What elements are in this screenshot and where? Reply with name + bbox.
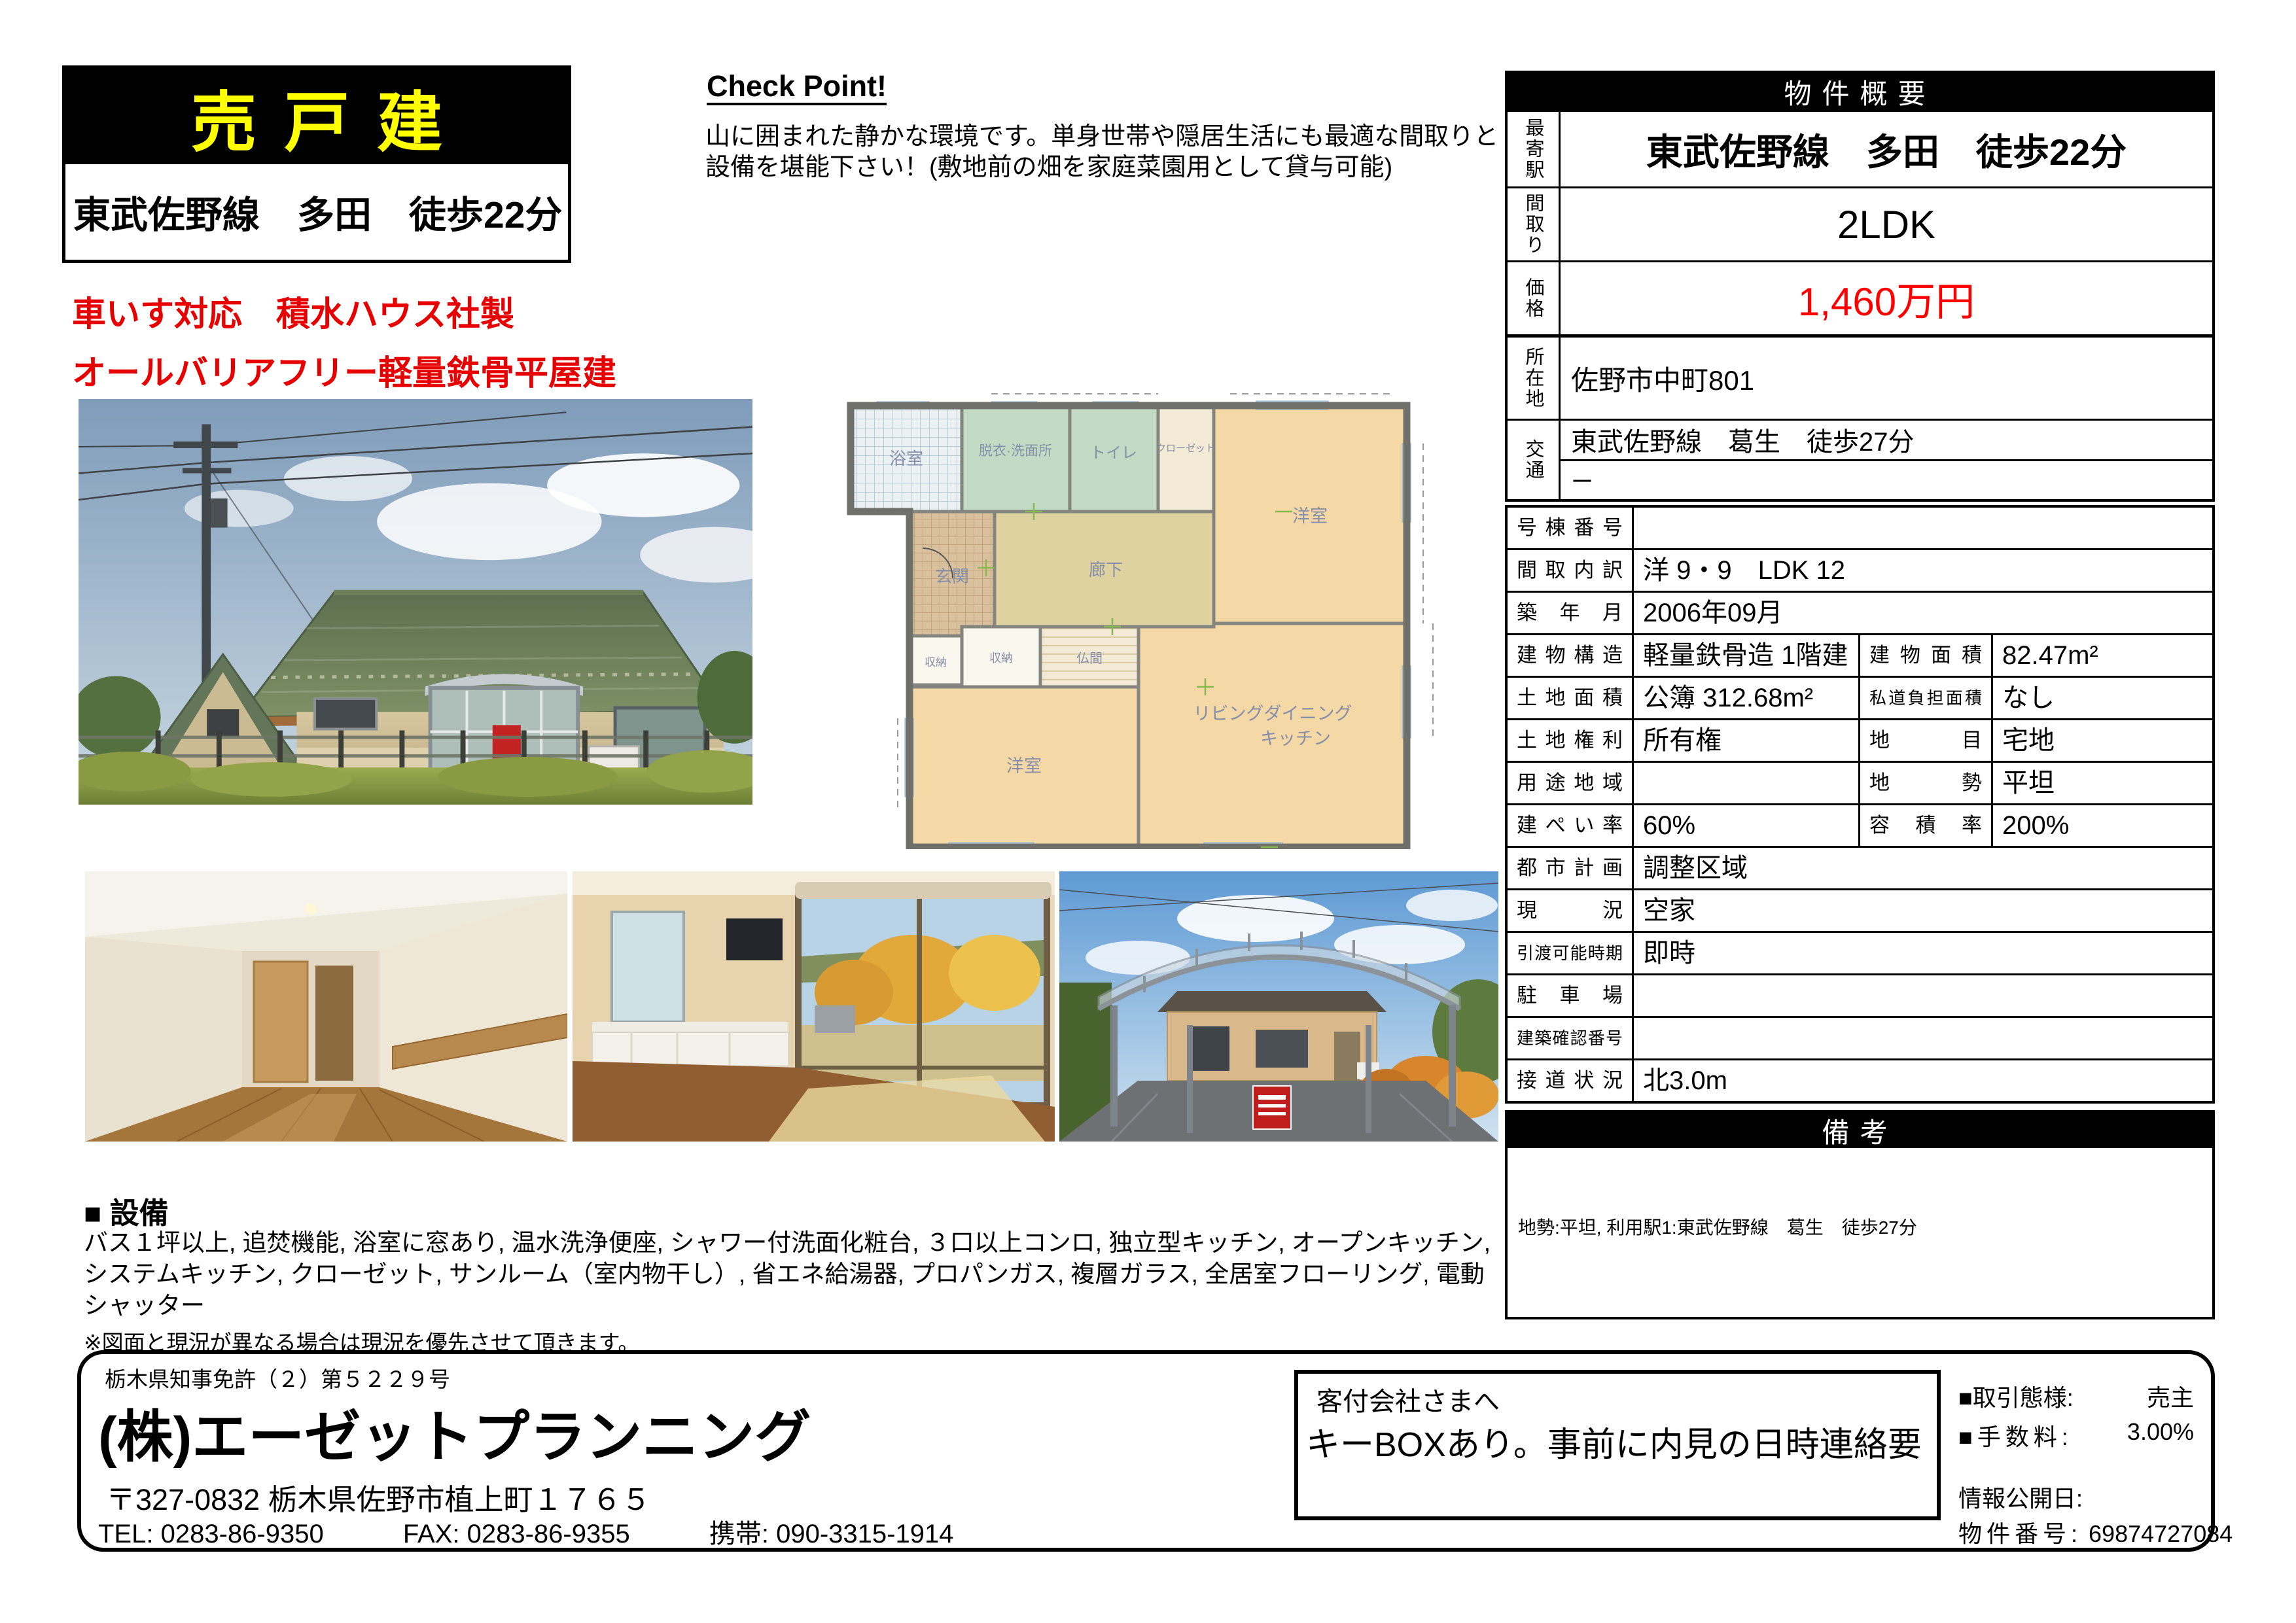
row-zoning: 用途地域 地勢 平坦: [1508, 761, 2212, 803]
details-table: 号棟番号 間取内訳 洋 9・9 LDK 12 築年月 2006年09月 建物構造…: [1505, 505, 2215, 1104]
wall-cabinet-dark: [726, 918, 783, 960]
detail-value: 所有権: [1634, 720, 1858, 761]
detail-value: 60%: [1634, 805, 1858, 846]
highlight-line-2: オールバリアフリー軽量鉄骨平屋建: [72, 345, 616, 394]
detail-label-2: 容積率: [1858, 805, 1993, 846]
property-number-value: 69874727084: [2089, 1520, 2233, 1547]
detail-label: 接道状況: [1508, 1060, 1634, 1101]
check-point-body: 山に囲まれた静かな環境です。単身世帯や隠居生活にも最適な間取りと設備を堪能下さい…: [705, 122, 1510, 183]
label-ldk-1: リビングダイニング: [1193, 704, 1352, 724]
photo-hallway-interior: [85, 871, 567, 1142]
detail-label: 建ぺい率: [1508, 805, 1634, 846]
company-mobile: 携帯: 090-3315-1914: [709, 1520, 954, 1548]
deal-fee-row: ■手数料: 3.00%: [1958, 1418, 2200, 1452]
remarks-text: 地勢:平坦, 利用駅1:東武佐野線 葛生 徒歩27分: [1518, 1213, 1917, 1240]
remarks-table: 備考 地勢:平坦, 利用駅1:東武佐野線 葛生 徒歩27分: [1505, 1110, 2215, 1319]
check-point-title: Check Point!: [707, 69, 887, 103]
detail-label: 土地面積: [1508, 678, 1634, 718]
rooms: [851, 406, 1407, 847]
label-bedroom2: 洋室: [1006, 756, 1042, 776]
deal-type-row: ■取引態様: 売主: [1958, 1379, 2200, 1413]
roller-blind: [795, 882, 1051, 899]
row-building-number: 号棟番号: [1508, 508, 2212, 548]
window-view: [798, 890, 1047, 1106]
door: [254, 962, 308, 1082]
company-tel: TEL: 0283-86-9350: [98, 1520, 324, 1548]
deal-info: ■取引態様: 売主 ■手数料: 3.00% 情報公開日: 物件番号: 69874…: [1958, 1350, 2200, 1552]
row-location: 所在地 佐野市中町801: [1508, 338, 2212, 419]
access-label: 交通: [1508, 421, 1561, 499]
property-number-row: 物件番号: 69874727084: [1958, 1515, 2200, 1549]
overview-row-station: 最寄駅 東武佐野線 多田 徒歩22分: [1508, 110, 2212, 186]
row-handover: 引渡可能時期 即時: [1508, 931, 2212, 973]
row-access: 交通 東武佐野線 葛生 徒歩27分 ー: [1508, 419, 2212, 499]
house-exterior-art: [79, 399, 752, 805]
detail-value-2: 82.47m²: [1993, 635, 2212, 676]
hallway-art: [85, 871, 567, 1142]
photo-kitchen-sunroom: [573, 871, 1055, 1142]
detail-label: 築年月: [1508, 593, 1634, 633]
detail-label-2: 地目: [1858, 720, 1993, 761]
row-coverage-ratio: 建ぺい率 60% 容積率 200%: [1508, 803, 2212, 846]
detail-label: 土地権利: [1508, 720, 1634, 761]
detail-value-2: 平坦: [1993, 763, 2212, 803]
detail-value: 即時: [1634, 933, 2212, 973]
row-land-rights: 土地権利 所有権 地目 宅地: [1508, 718, 2212, 761]
access-value-1: 東武佐野線 葛生 徒歩27分: [1561, 421, 2212, 459]
banner-station-line: 東武佐野線 多田 徒歩22分: [65, 164, 568, 260]
downlight: [305, 903, 317, 915]
row-road-access: 接道状況 北3.0m: [1508, 1058, 2212, 1101]
detail-label-2: 地勢: [1858, 763, 1993, 803]
photo-house-exterior: [79, 399, 752, 805]
floor-plan-drawing: 浴室 脱衣·洗面所 トイレ クローゼット 洋室 玄関 廊下 収納 収納 仏間 洋…: [838, 391, 1498, 849]
station-value: 東武佐野線 多田 徒歩22分: [1561, 112, 2212, 186]
label-bedroom1: 洋室: [1292, 506, 1328, 526]
floor-plan: 浴室 脱衣·洗面所 トイレ クローゼット 洋室 玄関 廊下 収納 収納 仏間 洋…: [838, 391, 1498, 849]
row-layout-breakdown: 間取内訳 洋 9・9 LDK 12: [1508, 548, 2212, 591]
location-label: 所在地: [1508, 338, 1561, 419]
overview-row-price: 価格 1,460万円: [1508, 260, 2212, 334]
detail-label: 間取内訳: [1508, 550, 1634, 591]
station-label: 最寄駅: [1508, 112, 1561, 186]
overview-header: 物件概要: [1508, 73, 2212, 110]
label-washroom: 脱衣·洗面所: [979, 444, 1052, 459]
row-land-area: 土地面積 公簿 312.68m² 私道負担面積 なし: [1508, 676, 2212, 718]
detail-label: 号棟番号: [1508, 508, 1634, 548]
property-type-banner: 売戸建 東武佐野線 多田 徒歩22分: [62, 65, 571, 263]
detail-label: 駐車場: [1508, 975, 1634, 1016]
countertop: [592, 1022, 788, 1032]
overview-row-layout: 間取り 2LDK: [1508, 186, 2212, 260]
carport-art: [1059, 871, 1498, 1142]
row-city-planning: 都市計画 調整区域: [1508, 846, 2212, 888]
price-label: 価格: [1508, 262, 1561, 334]
agent-note-heading: 客付会社さまへ: [1316, 1380, 1500, 1418]
remarks-body: 地勢:平坦, 利用駅1:東武佐野線 葛生 徒歩27分: [1508, 1148, 2212, 1317]
label-bath: 浴室: [889, 449, 923, 468]
detail-label: 建築確認番号: [1508, 1018, 1634, 1058]
row-building-confirmation: 建築確認番号: [1508, 1016, 2212, 1058]
equipment-title: ■ 設備: [84, 1189, 169, 1232]
flyer-sheet: 売戸建 東武佐野線 多田 徒歩22分 車いす対応 積水ハウス社製 オールバリアフ…: [0, 0, 2296, 1623]
agent-note-box: 客付会社さまへ キーBOXあり。事前に内見の日時連絡要: [1294, 1370, 1941, 1520]
layout-label: 間取り: [1508, 188, 1561, 260]
detail-value-2: なし: [1993, 678, 2212, 718]
label-toilet: トイレ: [1090, 444, 1137, 462]
detail-label: 都市計画: [1508, 848, 1634, 888]
location-table: 所在地 佐野市中町801 交通 東武佐野線 葛生 徒歩27分 ー: [1505, 335, 2215, 502]
detail-label-2: 私道負担面積: [1858, 678, 1993, 718]
deal-type-label: ■取引態様:: [1958, 1384, 2074, 1411]
price-value: 1,460万円: [1561, 262, 2212, 334]
detail-label: 建物構造: [1508, 635, 1634, 676]
row-built-date: 築年月 2006年09月: [1508, 591, 2212, 633]
overview-table: 物件概要 最寄駅 東武佐野線 多田 徒歩22分 間取り 2LDK 価格 1,46…: [1505, 71, 2215, 337]
mirror: [612, 912, 684, 1022]
row-parking: 駐車場: [1508, 973, 2212, 1016]
label-storage2: 収納: [989, 652, 1013, 665]
label-entrance: 玄関: [935, 567, 969, 586]
label-ldk-2: キッチン: [1260, 729, 1331, 748]
detail-value: 2006年09月: [1634, 593, 2212, 633]
row-current-status: 現況 空家: [1508, 888, 2212, 931]
sale-type-label: 売戸建: [65, 69, 568, 164]
photo-carport-exterior: [1059, 871, 1498, 1142]
detail-value: 洋 9・9 LDK 12: [1634, 550, 2212, 591]
detail-value: 公簿 312.68m²: [1634, 678, 1858, 718]
detail-label: 引渡可能時期: [1508, 933, 1634, 973]
label-hallway: 廊下: [1089, 560, 1123, 580]
detail-value: [1634, 508, 2212, 548]
equipment-body: バス１坪以上, 追焚機能, 浴室に窓あり, 温水洗浄便座, シャワー付洗面化粧台…: [84, 1227, 1504, 1321]
detail-value: 空家: [1634, 890, 2212, 931]
publish-date-label: 情報公開日:: [1958, 1485, 2083, 1512]
company-name: (株)エーゼットプランニング: [98, 1391, 811, 1473]
detail-label: 現況: [1508, 890, 1634, 931]
kitchen-art: [573, 871, 1055, 1142]
company-contacts: TEL: 0283-86-9350 FAX: 0283-86-9355 携帯: …: [98, 1512, 1025, 1550]
sale-sign-board: [1253, 1086, 1291, 1129]
row-structure-area: 建物構造 軽量鉄骨造 1階建 建物面積 82.47m²: [1508, 633, 2212, 676]
detail-value: 軽量鉄骨造 1階建: [1634, 635, 1858, 676]
company-fax: FAX: 0283-86-9355: [403, 1520, 630, 1548]
property-number-label: 物件番号:: [1958, 1520, 2082, 1547]
highlight-line-1: 車いす対応 積水ハウス社製: [72, 287, 514, 336]
label-altar-room: 仏間: [1076, 652, 1103, 666]
detail-value: [1634, 1018, 2212, 1058]
remarks-header: 備考: [1508, 1113, 2212, 1148]
detail-value: [1634, 763, 1858, 803]
detail-value: 北3.0m: [1634, 1060, 2212, 1101]
detail-value: 調整区域: [1634, 848, 2212, 888]
location-value: 佐野市中町801: [1561, 338, 2212, 419]
detail-value-2: 宅地: [1993, 720, 2212, 761]
detail-value-2: 200%: [1993, 805, 2212, 846]
small-window: [315, 699, 376, 729]
label-closet: クローゼット: [1156, 443, 1215, 454]
deal-fee-label: ■手数料:: [1958, 1423, 2073, 1450]
deal-fee-value: 3.00%: [2127, 1418, 2194, 1446]
publish-date-row: 情報公開日:: [1958, 1480, 2200, 1514]
detail-value: [1634, 975, 2212, 1016]
open-doorway: [315, 966, 353, 1081]
label-storage1: 収納: [925, 656, 947, 669]
deal-type-value: 売主: [2147, 1379, 2194, 1413]
access-value-2: ー: [1561, 459, 2212, 500]
company-license: 栃木県知事免許（２）第５２２９号: [105, 1362, 450, 1393]
detail-label-2: 建物面積: [1858, 635, 1993, 676]
agent-note-body: キーBOXあり。事前に内見の日時連絡要: [1306, 1417, 1922, 1466]
layout-value: 2LDK: [1561, 188, 2212, 260]
detail-label: 用途地域: [1508, 763, 1634, 803]
gable-window: [207, 709, 239, 737]
